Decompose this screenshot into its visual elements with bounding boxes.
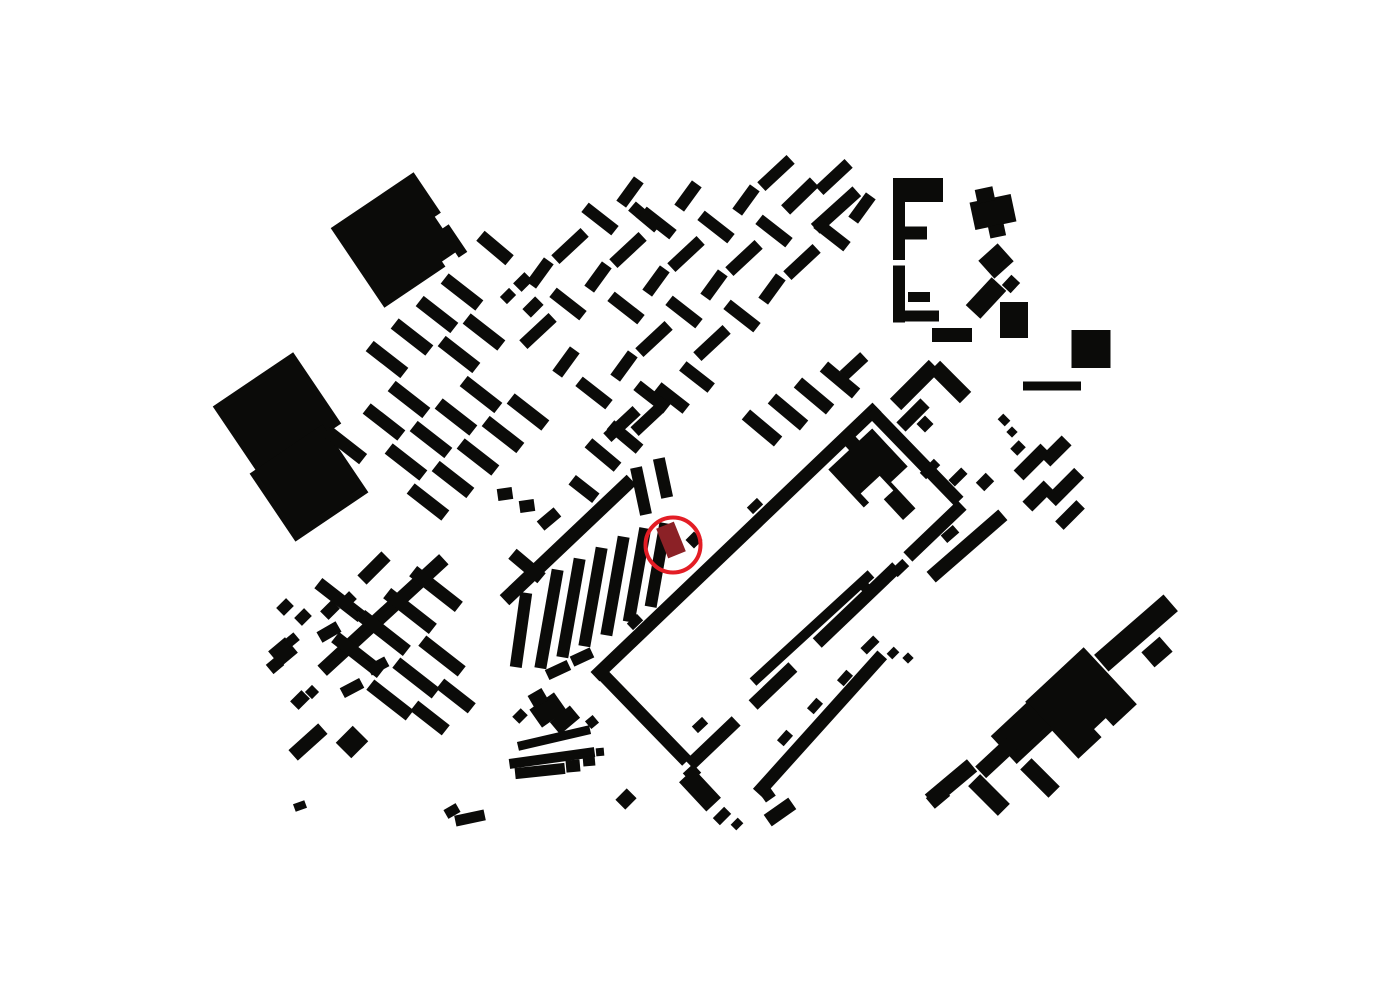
figure-ground-map: [0, 0, 1400, 990]
site-plan-canvas: [0, 0, 1400, 990]
building: [583, 755, 596, 766]
building: [497, 487, 514, 501]
building: [519, 499, 536, 513]
building: [908, 292, 930, 302]
building: [899, 178, 943, 202]
map-background: [0, 0, 1400, 990]
building: [893, 266, 905, 323]
building: [905, 311, 939, 322]
building: [1072, 330, 1111, 368]
building: [1000, 302, 1028, 338]
building: [596, 748, 605, 757]
building: [905, 227, 927, 240]
building: [932, 328, 972, 342]
building: [566, 759, 581, 772]
building: [1023, 382, 1081, 391]
